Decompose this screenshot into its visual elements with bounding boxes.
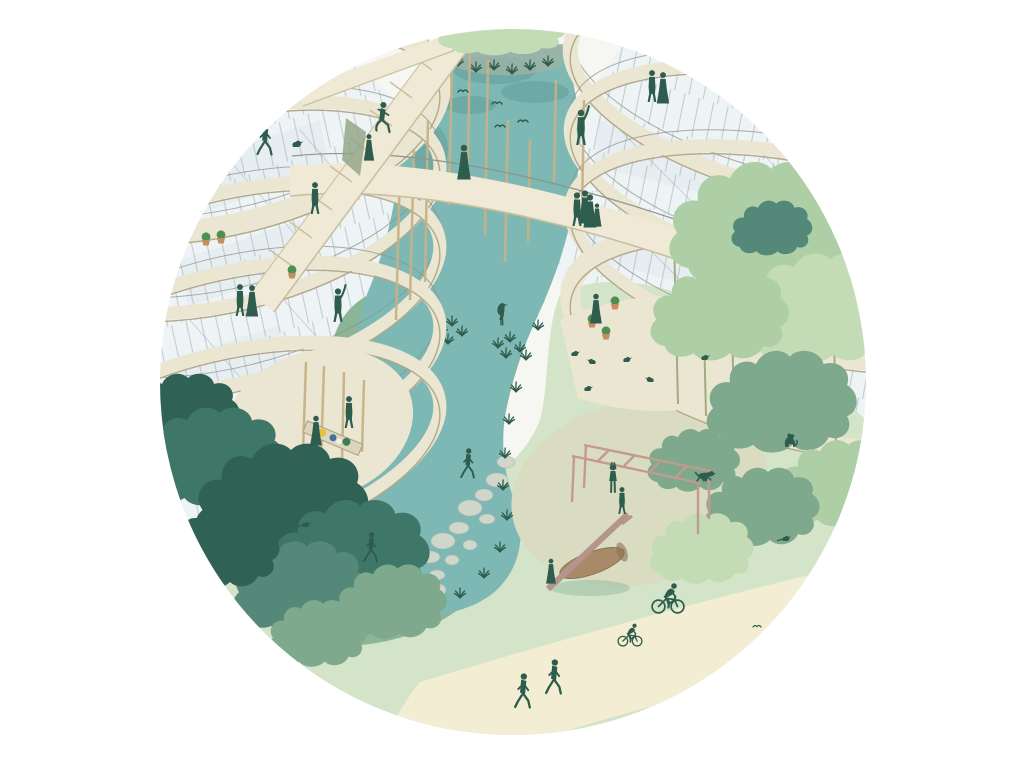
potted-plant — [217, 230, 226, 243]
potted-plant — [288, 265, 297, 278]
potted-plant — [602, 326, 611, 339]
architectural-illustration — [0, 0, 1027, 766]
potted-plant — [611, 296, 620, 309]
illustration-page — [0, 0, 1027, 766]
potted-plant — [202, 232, 211, 245]
